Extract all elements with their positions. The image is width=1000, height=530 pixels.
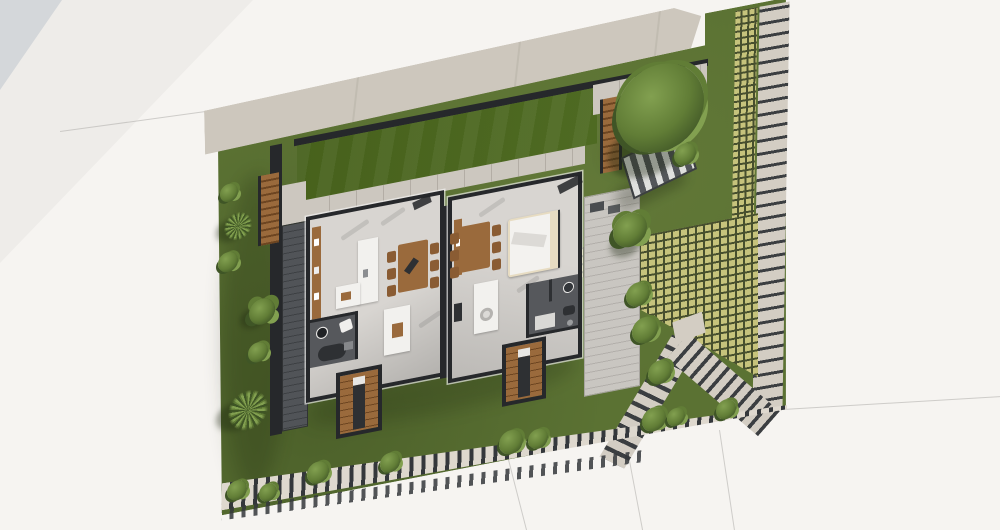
dining-table	[398, 239, 428, 293]
boundary-line	[719, 430, 735, 530]
chair	[492, 224, 501, 237]
washbasin	[563, 281, 574, 294]
cabinet-appliance	[314, 266, 319, 274]
stair-well	[353, 383, 365, 429]
sidewalk-seam	[514, 42, 521, 87]
counter-foot	[336, 282, 360, 309]
chair	[450, 232, 459, 245]
sidewalk-seam	[654, 11, 661, 56]
stepping-slab-path	[752, 1, 789, 414]
l-shaped-counter	[358, 237, 378, 305]
shower-partition	[549, 279, 552, 302]
entry-stairs-unit-a	[336, 364, 382, 439]
cutting-board	[341, 291, 351, 301]
double-bed	[508, 210, 560, 278]
chair	[387, 284, 396, 297]
sidewalk-seam	[352, 77, 359, 122]
island-tray	[392, 322, 403, 338]
stair-well	[518, 355, 530, 397]
chair	[450, 266, 459, 279]
bathroom	[310, 311, 358, 368]
media-cabinet	[454, 303, 462, 323]
pillow	[550, 214, 558, 238]
kitchen-island	[474, 280, 498, 335]
chair	[492, 241, 501, 254]
drain	[567, 319, 573, 326]
vanity	[535, 313, 555, 331]
chair	[450, 249, 459, 262]
pillow	[550, 242, 558, 266]
chair	[430, 259, 439, 272]
bathroom	[526, 274, 578, 338]
table-decor	[404, 258, 419, 275]
garden-stairs-west	[258, 172, 282, 247]
bathtub	[318, 342, 346, 362]
site-plan-render	[0, 0, 1000, 530]
toilet	[339, 318, 353, 333]
chair	[430, 242, 439, 255]
chair	[387, 267, 396, 280]
chair	[492, 258, 501, 271]
toilet	[563, 305, 575, 316]
entry-stairs-unit-b	[502, 336, 546, 407]
chair	[430, 276, 439, 289]
cabinet-appliance	[314, 238, 319, 246]
chair	[387, 250, 396, 263]
kitchen-wall-cabinets	[312, 226, 321, 320]
grass-paver-strip	[732, 7, 758, 228]
timber-deck	[282, 221, 308, 432]
island-sink	[480, 307, 493, 323]
dining-table	[460, 221, 490, 273]
headboard	[558, 210, 560, 268]
cabinet-appliance	[314, 292, 319, 300]
bath-mat	[344, 341, 353, 351]
boundary-line	[783, 396, 1000, 410]
boundary-line	[506, 452, 527, 530]
washbasin	[316, 326, 328, 340]
sink-fixture	[363, 269, 368, 278]
kitchen-island	[384, 305, 410, 356]
